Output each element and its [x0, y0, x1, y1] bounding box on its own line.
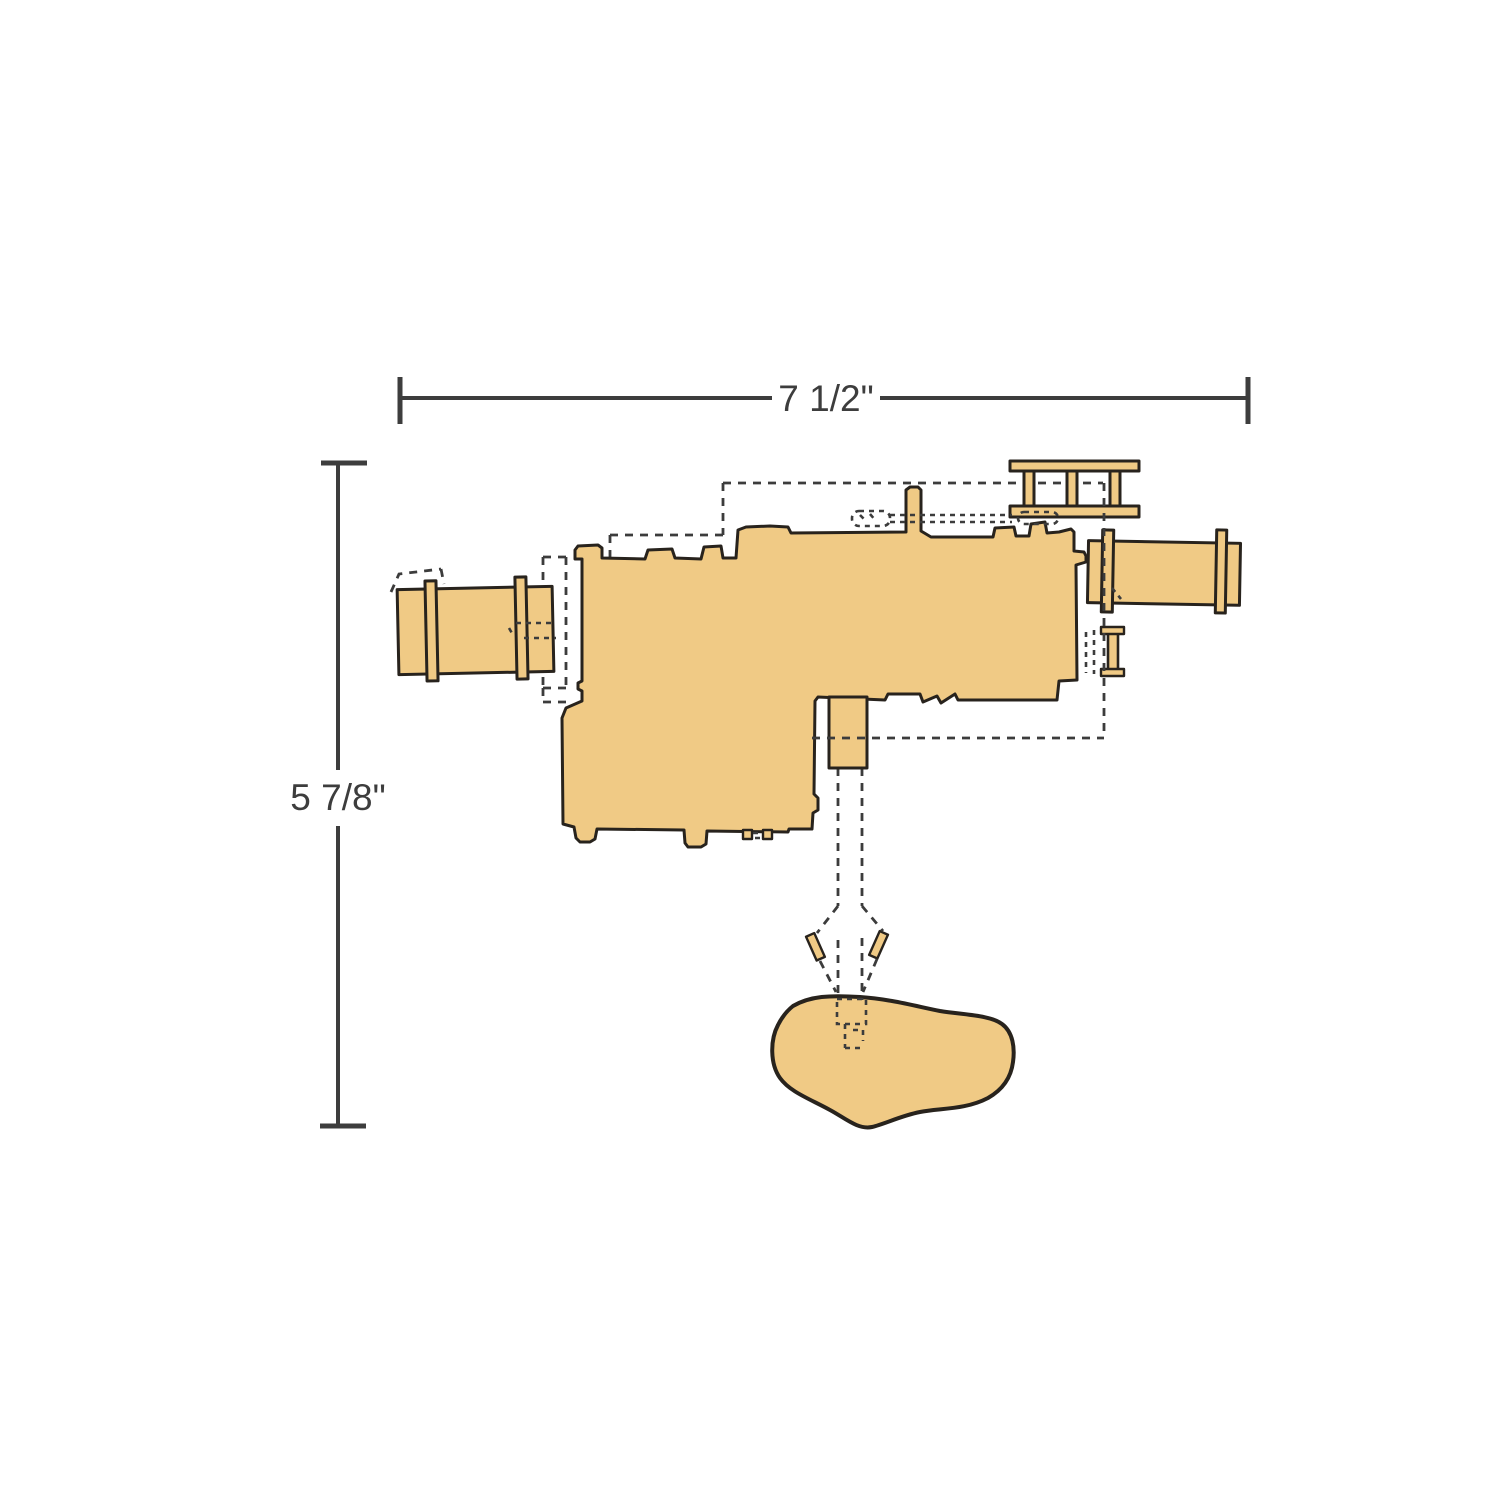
dashed-clamp-marks — [860, 514, 876, 521]
left-crawl-tube — [397, 576, 554, 681]
right-crawl-tube — [1087, 528, 1240, 615]
support-post-bar — [1108, 633, 1118, 670]
anchor-foot-left — [743, 830, 752, 839]
anchor-foot-right — [763, 830, 772, 839]
height-dimension: 5 7/8" — [290, 463, 385, 1126]
right-tube-ring-2 — [1215, 530, 1226, 613]
swing-drop-verticals — [838, 938, 862, 1000]
slide-section — [829, 697, 867, 768]
plan-view-diagram: 7 1/2" 5 7/8" — [0, 0, 1500, 1500]
swing-converge-lines — [820, 959, 877, 992]
width-dimension-label: 7 1/2" — [778, 378, 873, 419]
support-post-cap-top — [1101, 627, 1124, 634]
ladder-rail-bottom — [1010, 506, 1139, 517]
width-dimension: 7 1/2" — [400, 377, 1248, 424]
ladder-rung-3 — [1110, 470, 1120, 507]
left-tube-body — [397, 586, 554, 674]
swing-spread-lines — [817, 906, 883, 933]
ladder-rail-top — [1010, 461, 1139, 471]
swing-chock-left — [806, 933, 825, 960]
height-dimension-label: 5 7/8" — [290, 777, 385, 818]
ladder-rung-2 — [1067, 470, 1077, 507]
ground-rock — [772, 996, 1013, 1127]
right-tube-ring-1 — [1101, 530, 1113, 612]
dashed-swing-ropes — [838, 768, 862, 906]
anchor-dashes — [753, 833, 762, 838]
ladder-rung-1 — [1024, 470, 1034, 507]
left-tube-ring-2 — [515, 577, 528, 679]
swing-seat-chocks — [806, 931, 888, 960]
left-tube-ring-1 — [425, 581, 438, 681]
swing-chock-right — [869, 931, 888, 958]
main-deck-platform — [562, 487, 1086, 847]
overhead-ladder — [1010, 461, 1139, 517]
